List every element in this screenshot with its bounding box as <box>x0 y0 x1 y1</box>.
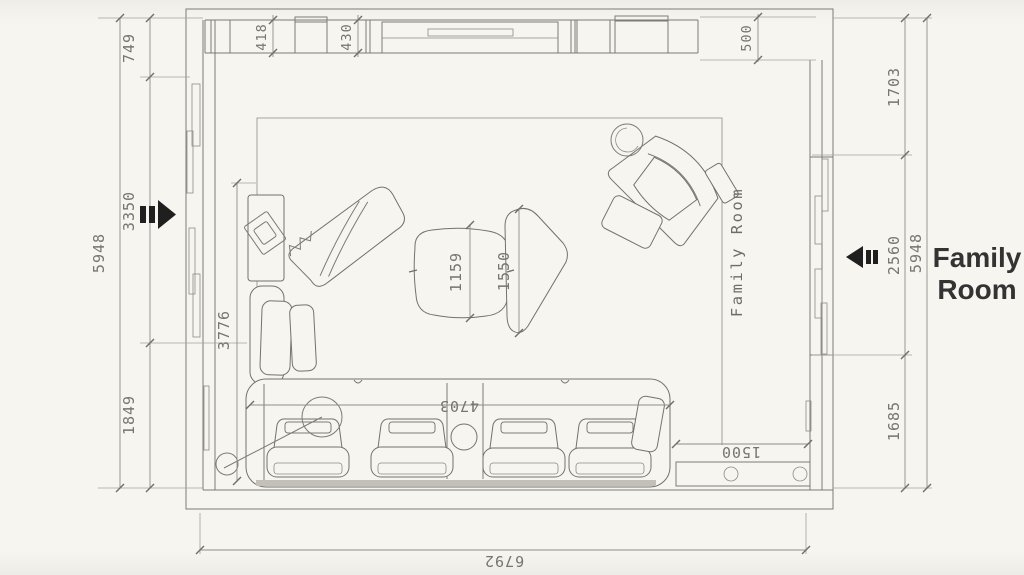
console-table <box>244 195 286 281</box>
dim-right-total: 5948 <box>907 233 925 273</box>
floor-plan-canvas: 5948 749 3350 1849 1703 2560 1685 5948 4… <box>0 0 1024 575</box>
arrow-right-icon <box>140 200 176 229</box>
dim-interior-1159: 1159 <box>447 252 465 292</box>
room-label-interior: Family Room <box>728 187 746 317</box>
dim-interior-1550: 1550 <box>495 251 513 291</box>
chaise-lounge <box>250 286 317 384</box>
dim-right-1685: 1685 <box>885 401 903 441</box>
dim-left-3350: 3350 <box>120 191 138 231</box>
dim-left-total: 5948 <box>90 233 108 273</box>
bench-console <box>676 462 810 486</box>
dim-left-1849: 1849 <box>120 395 138 435</box>
round-pillow <box>451 424 477 450</box>
dim-interior-3776: 3776 <box>215 310 233 350</box>
dim-top-500: 500 <box>739 24 755 51</box>
dim-left-749: 749 <box>120 33 138 63</box>
throw-blanket <box>283 173 412 294</box>
dim-right-1703: 1703 <box>885 67 903 107</box>
dim-interior-1500: 1500 <box>721 443 761 461</box>
coffee-table-triangle <box>505 208 567 332</box>
round-side-table <box>611 124 643 156</box>
dim-interior-4703: 4703 <box>439 397 479 415</box>
dim-top-430: 430 <box>339 23 355 50</box>
dim-top-418: 418 <box>254 23 270 50</box>
room-name-label: Family Room <box>926 242 1024 306</box>
arrow-left-icon <box>846 246 878 268</box>
pillow <box>260 300 293 375</box>
dim-bottom-total: 6792 <box>484 552 524 570</box>
pillow <box>289 304 316 371</box>
floor-plan-drawing: 5948 749 3350 1849 1703 2560 1685 5948 4… <box>0 0 1024 575</box>
dim-right-2560: 2560 <box>885 235 903 275</box>
